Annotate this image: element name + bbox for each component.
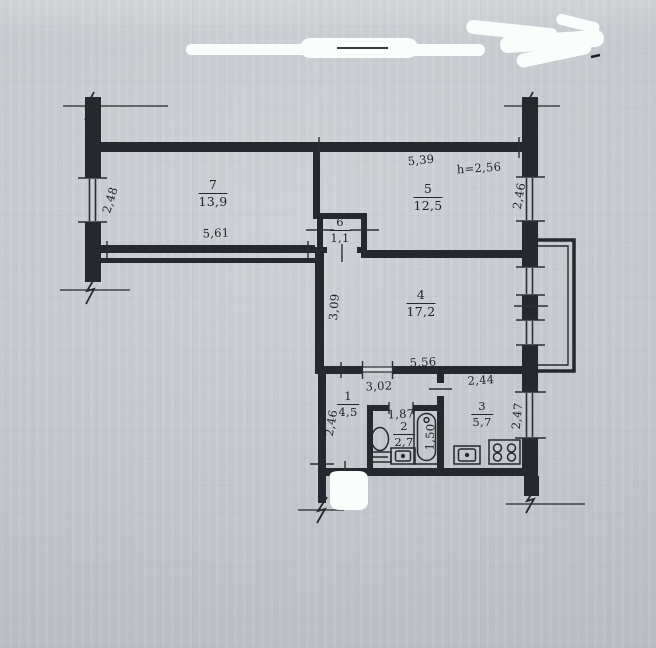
room-label-6: 6 1,1 xyxy=(329,216,351,245)
room-label-2: 2 2,7 xyxy=(393,420,415,449)
room-area: 2,7 xyxy=(393,435,415,449)
room-area: 17,2 xyxy=(406,304,435,319)
room-number: 1 xyxy=(337,390,359,405)
room-area: 12,5 xyxy=(413,198,442,213)
dim-bathroom-width: 1,87 xyxy=(387,407,414,422)
toilet-icon xyxy=(369,428,391,463)
dim-room4-width: 5,56 xyxy=(409,354,437,369)
floor-plan-drawing xyxy=(0,0,656,648)
dim-room7-width: 5,61 xyxy=(202,226,229,241)
floor-plan-scan: 7 13,9 5 12,5 6 1,1 4 17,2 1 4,5 2 2,7 3… xyxy=(0,0,656,648)
room-number: 5 xyxy=(413,182,442,198)
room-label-4: 4 17,2 xyxy=(406,288,435,320)
dim-kitchen-width: 2,44 xyxy=(467,372,495,388)
dim-kitchen-height: 2,47 xyxy=(509,402,526,430)
room-label-1: 1 4,5 xyxy=(337,390,359,419)
room-label-3: 3 5,7 xyxy=(471,400,493,429)
room-label-7: 7 13,9 xyxy=(198,178,227,210)
bathroom-sink-icon xyxy=(391,448,415,464)
walls xyxy=(85,97,539,503)
room-area: 13,9 xyxy=(198,194,227,209)
windows xyxy=(90,178,533,437)
dim-bathroom-height: 1,50 xyxy=(423,423,438,450)
room-number: 3 xyxy=(471,400,493,415)
stove-icon xyxy=(489,440,520,464)
room-number: 6 xyxy=(329,216,351,231)
room-number: 7 xyxy=(198,178,227,194)
room-number: 2 xyxy=(393,420,415,435)
dim-hall-width: 3,02 xyxy=(365,379,392,394)
dim-room4-height: 3,09 xyxy=(326,293,342,321)
dim-room5-width: 5,39 xyxy=(407,152,435,169)
room-area: 1,1 xyxy=(329,231,351,245)
room-label-5: 5 12,5 xyxy=(413,182,442,214)
room-area: 5,7 xyxy=(471,415,493,429)
kitchen-sink-icon xyxy=(454,446,480,464)
door-opening-room4-hall xyxy=(363,367,393,372)
room-number: 4 xyxy=(406,288,435,304)
room-area: 4,5 xyxy=(337,405,359,419)
